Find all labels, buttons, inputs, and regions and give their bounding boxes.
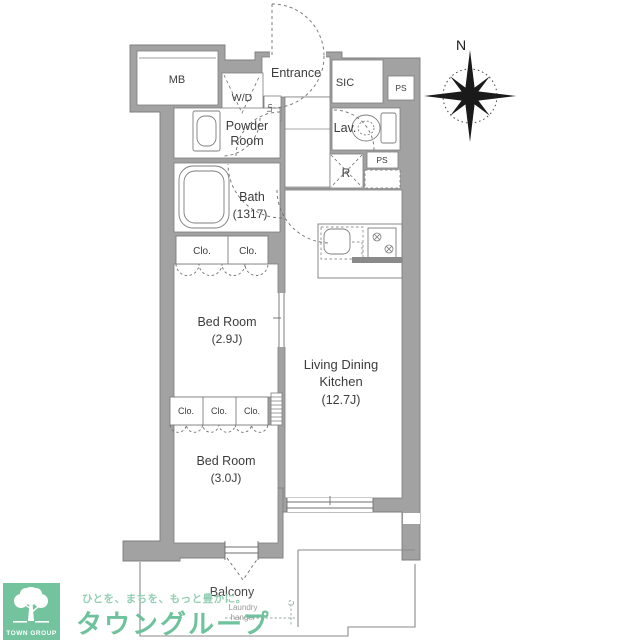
room-powder	[174, 108, 280, 158]
label-ps-mid: PS	[376, 155, 388, 165]
floorplan-image: MB W/D Ln Entrance SIC PS Powder Room La…	[0, 0, 640, 640]
compass-north-label: N	[456, 37, 466, 53]
brand-company-name: タウングループ	[76, 604, 270, 640]
label-powder-2: Room	[230, 134, 263, 148]
label-bath-size: (1317)	[233, 207, 268, 221]
room-hallway	[285, 97, 330, 188]
floorplan-svg: MB W/D Ln Entrance SIC PS Powder Room La…	[0, 0, 640, 640]
label-bath: Bath	[239, 190, 265, 204]
label-bedroom1: Bed Room	[197, 315, 256, 329]
kitchen-counter	[318, 224, 402, 278]
tree-icon	[3, 583, 60, 628]
logo-text: TOWN GROUP	[3, 630, 60, 637]
front-door-arc	[272, 4, 324, 56]
label-closet-l3: Clo.	[244, 406, 260, 416]
label-bedroom2: Bed Room	[196, 454, 255, 468]
label-bedroom1-size: (2.9J)	[212, 332, 243, 346]
label-mb: MB	[169, 74, 186, 86]
label-refrigerator: R	[342, 166, 351, 180]
label-ldk-2: Kitchen	[319, 374, 362, 389]
label-ldk-1: Living Dining	[304, 357, 378, 372]
balcony-inner-edge	[298, 550, 415, 627]
hatched-partition	[271, 393, 282, 425]
ldk-balcony-window	[287, 496, 373, 512]
label-closet-l1: Clo.	[178, 406, 194, 416]
label-ldk-3: (12.7J)	[322, 393, 361, 407]
room-bedroom1	[174, 264, 278, 397]
label-closet-u2: Clo.	[239, 246, 257, 257]
label-closet-l2: Clo.	[211, 406, 227, 416]
bedroom2-balcony-window	[225, 541, 258, 560]
label-linen: Ln	[265, 104, 274, 112]
label-entrance: Entrance	[271, 66, 321, 80]
label-lavatory: Lav.	[334, 121, 357, 135]
wall-notch	[403, 513, 420, 524]
label-powder-1: Powder	[226, 119, 268, 133]
balcony-door-swing	[227, 558, 258, 580]
label-wd: W/D	[232, 92, 253, 104]
label-ps-top: PS	[395, 83, 407, 93]
town-group-logo: TOWN GROUP	[3, 583, 60, 640]
label-sic: SIC	[336, 77, 354, 89]
label-closet-u1: Clo.	[193, 246, 211, 257]
front-door-opening	[270, 50, 326, 59]
cupboard-dashed	[365, 170, 400, 188]
label-bedroom2-size: (3.0J)	[211, 471, 242, 485]
counter-dark-bar	[352, 257, 402, 263]
compass: N	[424, 37, 516, 142]
